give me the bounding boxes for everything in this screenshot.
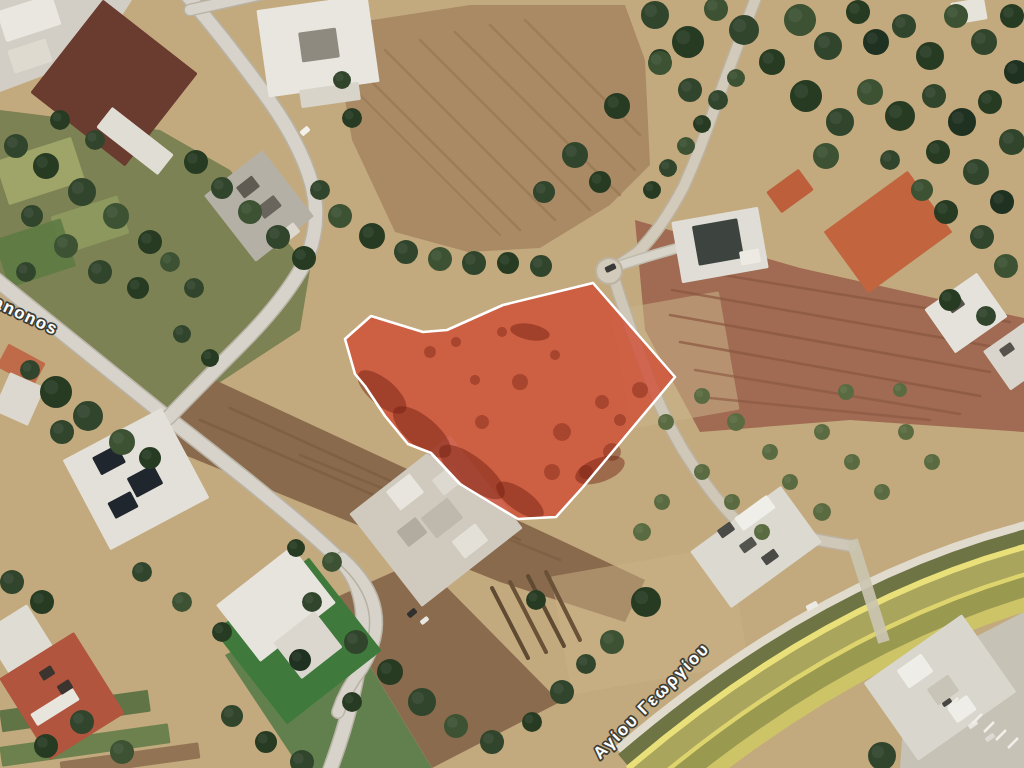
tree-highlight bbox=[711, 93, 720, 102]
tree-highlight bbox=[579, 657, 588, 666]
tree-highlight bbox=[895, 17, 906, 28]
tree-highlight bbox=[974, 32, 986, 44]
tree-highlight bbox=[142, 450, 152, 460]
tree-highlight bbox=[525, 715, 534, 724]
tree-highlight bbox=[23, 363, 32, 372]
tree-highlight bbox=[224, 708, 234, 718]
tree-highlight bbox=[1007, 63, 1018, 74]
tree-highlight bbox=[937, 203, 948, 214]
tree-highlight bbox=[112, 432, 124, 444]
parcel-shadow-dot bbox=[595, 395, 609, 409]
tree-highlight bbox=[529, 593, 538, 602]
tree-highlight bbox=[925, 87, 936, 98]
tree-highlight bbox=[696, 466, 703, 473]
tree-highlight bbox=[1003, 7, 1014, 18]
map-viewport[interactable]: anonosΑγίου Γεωργίου bbox=[0, 0, 1024, 768]
tree-highlight bbox=[920, 46, 933, 59]
tree-highlight bbox=[947, 7, 958, 18]
parcel-shadow-dot bbox=[632, 382, 648, 398]
tree-highlight bbox=[849, 3, 860, 14]
tree-highlight bbox=[942, 292, 952, 302]
tree-highlight bbox=[536, 184, 546, 194]
tree-highlight bbox=[483, 733, 494, 744]
tree-highlight bbox=[412, 692, 425, 705]
tree-highlight bbox=[397, 243, 408, 254]
tree-highlight bbox=[900, 426, 907, 433]
tree-highlight bbox=[187, 153, 198, 164]
tree-highlight bbox=[815, 505, 823, 513]
tree-highlight bbox=[258, 734, 268, 744]
tree-highlight bbox=[756, 526, 763, 533]
parcel-shadow-dot bbox=[512, 374, 528, 390]
tree-highlight bbox=[726, 496, 733, 503]
tree-highlight bbox=[24, 208, 34, 218]
tree-highlight bbox=[7, 137, 18, 148]
tree-highlight bbox=[707, 0, 718, 11]
tree-highlight bbox=[113, 743, 124, 754]
tree-highlight bbox=[860, 82, 872, 94]
tree-highlight bbox=[876, 486, 883, 493]
tree-highlight bbox=[840, 386, 847, 393]
tree-highlight bbox=[696, 390, 703, 397]
tree-highlight bbox=[651, 54, 662, 65]
tree-highlight bbox=[997, 257, 1008, 268]
parcel-shadow-dot bbox=[544, 464, 560, 480]
tree-highlight bbox=[19, 265, 28, 274]
courtyard-dark bbox=[298, 28, 340, 63]
tree-highlight bbox=[1002, 132, 1014, 144]
tree-highlight bbox=[37, 737, 48, 748]
tree-highlight bbox=[345, 111, 354, 120]
tree-highlight bbox=[347, 633, 358, 644]
tree-highlight bbox=[500, 255, 510, 265]
tree-highlight bbox=[141, 233, 152, 244]
tree-highlight bbox=[872, 746, 885, 759]
tree-highlight bbox=[77, 405, 91, 419]
tree-highlight bbox=[553, 683, 564, 694]
tree-highlight bbox=[57, 237, 68, 248]
parcel-shadow-dot bbox=[497, 327, 507, 337]
parcel-shadow-dot bbox=[424, 346, 436, 358]
tree-highlight bbox=[681, 81, 692, 92]
tree-highlight bbox=[818, 36, 831, 49]
tree-highlight bbox=[635, 591, 649, 605]
tree-highlight bbox=[203, 351, 211, 359]
tree-highlight bbox=[106, 206, 118, 218]
parcel-shadow-dot bbox=[475, 415, 489, 429]
tree-highlight bbox=[130, 280, 140, 290]
tree-highlight bbox=[889, 105, 903, 119]
tree-highlight bbox=[325, 555, 334, 564]
parcel-shadow-dot bbox=[451, 337, 461, 347]
tree-highlight bbox=[784, 476, 791, 483]
tree-highlight bbox=[883, 153, 892, 162]
tree-highlight bbox=[33, 593, 44, 604]
tree-highlight bbox=[979, 309, 988, 318]
tree-highlight bbox=[679, 139, 687, 147]
tree-highlight bbox=[72, 182, 85, 195]
tree-highlight bbox=[565, 145, 577, 157]
tree-highlight bbox=[269, 228, 280, 239]
tree-highlight bbox=[175, 327, 183, 335]
parcel-shadow-dot bbox=[553, 423, 571, 441]
tree-highlight bbox=[676, 30, 690, 44]
tree-highlight bbox=[952, 112, 965, 125]
tree-highlight bbox=[645, 183, 653, 191]
tree-highlight bbox=[846, 456, 853, 463]
tree-highlight bbox=[929, 143, 940, 154]
tree-highlight bbox=[431, 250, 442, 261]
tree-highlight bbox=[135, 565, 144, 574]
tree-highlight bbox=[187, 281, 196, 290]
tree-highlight bbox=[914, 182, 924, 192]
tree-highlight bbox=[993, 193, 1004, 204]
tree-highlight bbox=[895, 385, 901, 391]
tree-highlight bbox=[305, 595, 314, 604]
tree-highlight bbox=[53, 423, 64, 434]
tree-highlight bbox=[816, 426, 823, 433]
tree-highlight bbox=[295, 249, 306, 260]
tree-highlight bbox=[645, 5, 658, 18]
tree-highlight bbox=[313, 183, 322, 192]
tree-highlight bbox=[44, 380, 58, 394]
tree-highlight bbox=[345, 695, 354, 704]
tree-highlight bbox=[788, 8, 802, 22]
tree-highlight bbox=[764, 446, 771, 453]
tree-highlight bbox=[289, 541, 297, 549]
tree-highlight bbox=[661, 161, 669, 169]
tree-highlight bbox=[603, 633, 614, 644]
tree-highlight bbox=[656, 496, 663, 503]
tree-highlight bbox=[331, 207, 342, 218]
tree-highlight bbox=[533, 258, 543, 268]
tree-highlight bbox=[163, 255, 172, 264]
tree-highlight bbox=[380, 662, 392, 674]
tree-highlight bbox=[36, 156, 48, 168]
tree-highlight bbox=[635, 525, 643, 533]
tree-highlight bbox=[214, 180, 224, 190]
pool-dark bbox=[692, 218, 744, 265]
satellite-map-canvas: anonosΑγίου Γεωργίου bbox=[0, 0, 1024, 768]
tree-highlight bbox=[335, 73, 343, 81]
tree-highlight bbox=[729, 71, 737, 79]
parcel-shadow-dot bbox=[550, 350, 560, 360]
tree-highlight bbox=[981, 93, 992, 104]
tree-highlight bbox=[729, 415, 737, 423]
tree-highlight bbox=[293, 753, 304, 764]
tree-highlight bbox=[794, 84, 808, 98]
tree-highlight bbox=[966, 162, 978, 174]
tree-highlight bbox=[733, 19, 747, 33]
tree-highlight bbox=[362, 226, 374, 238]
parcel-shadow-dot bbox=[470, 375, 480, 385]
tree-highlight bbox=[926, 456, 933, 463]
tree-highlight bbox=[73, 713, 84, 724]
tree-highlight bbox=[447, 717, 458, 728]
tree-highlight bbox=[816, 146, 828, 158]
tree-highlight bbox=[292, 652, 302, 662]
tree-highlight bbox=[607, 96, 619, 108]
tree-highlight bbox=[91, 263, 102, 274]
tree-highlight bbox=[830, 112, 843, 125]
tree-highlight bbox=[660, 416, 667, 423]
parcel-shadow-dot bbox=[614, 414, 626, 426]
tree-highlight bbox=[695, 117, 703, 125]
tree-highlight bbox=[241, 203, 252, 214]
tree-highlight bbox=[592, 174, 602, 184]
tree-highlight bbox=[88, 133, 97, 142]
tree-highlight bbox=[762, 52, 774, 64]
tree-highlight bbox=[215, 625, 224, 634]
tree-highlight bbox=[53, 113, 62, 122]
tree-highlight bbox=[866, 32, 878, 44]
tree-highlight bbox=[973, 228, 984, 239]
tree-highlight bbox=[175, 595, 184, 604]
tree-highlight bbox=[465, 254, 476, 265]
tree-highlight bbox=[3, 573, 14, 584]
